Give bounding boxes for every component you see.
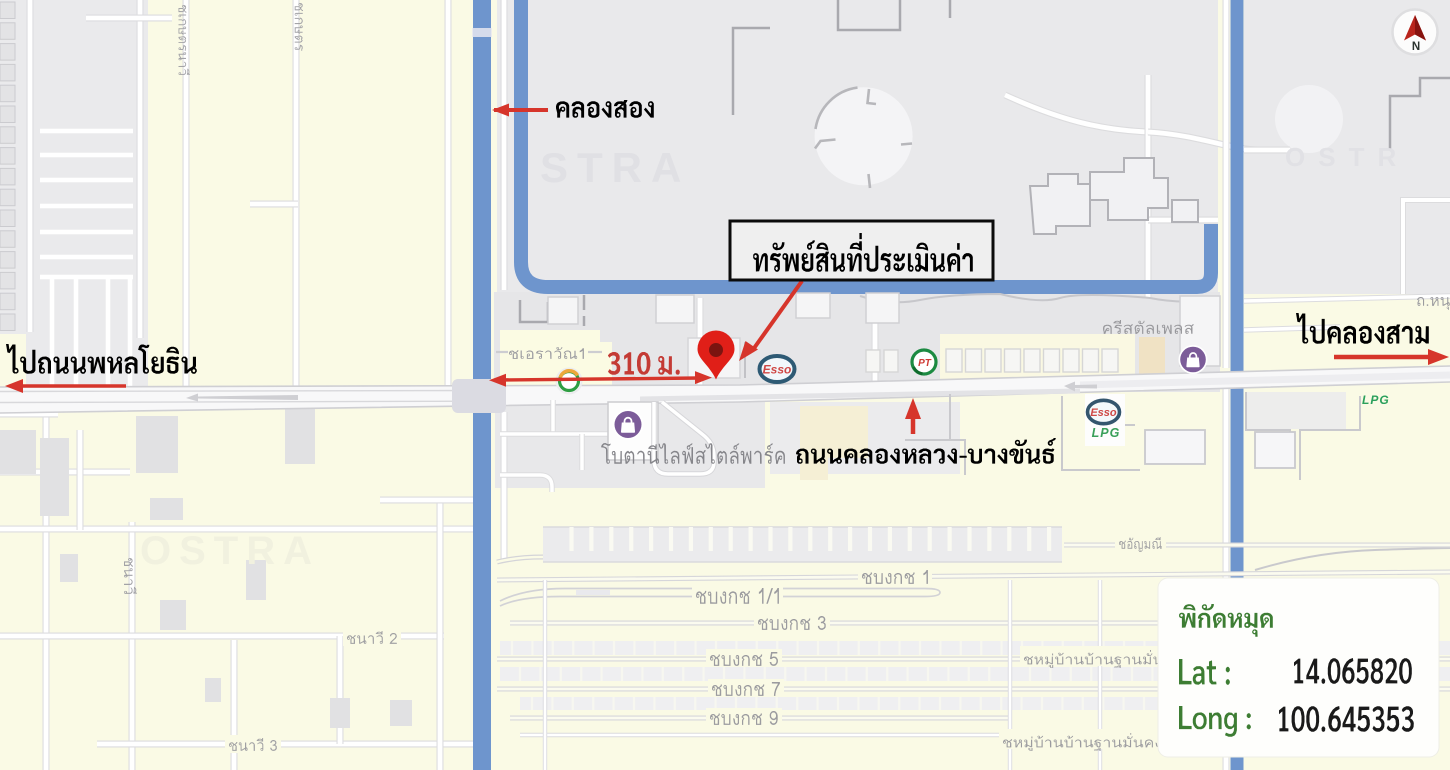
svg-text:PT: PT: [918, 358, 932, 369]
svg-text:LPG: LPG: [1362, 393, 1390, 407]
svg-text:N: N: [1412, 41, 1420, 53]
svg-text:STRA: STRA: [540, 144, 690, 191]
svg-text:Esso: Esso: [763, 363, 792, 377]
svg-text:LPG: LPG: [1092, 426, 1121, 440]
svg-text:Esso: Esso: [1090, 407, 1117, 419]
svg-text:OSTRA: OSTRA: [140, 529, 320, 573]
svg-text:OSTR: OSTR: [1285, 142, 1409, 172]
